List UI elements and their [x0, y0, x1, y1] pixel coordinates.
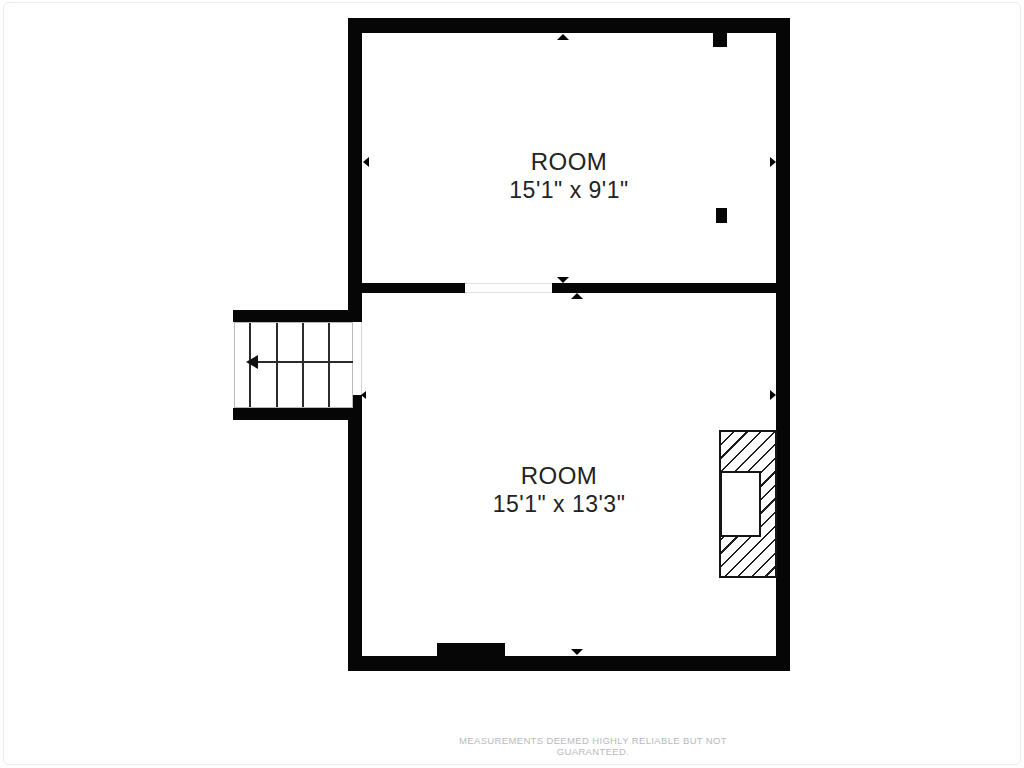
stair-tread-line [328, 323, 330, 407]
left-arrow-icon [361, 391, 366, 399]
stair-direction-arrow-left-icon [246, 355, 258, 369]
divider-wall-right [552, 283, 776, 293]
wall-top [348, 18, 790, 33]
room-1-dimensions: 15'1" x 9'1" [459, 176, 679, 205]
wall-right [776, 18, 790, 671]
room-1-name: ROOM [459, 147, 679, 176]
wall-bottom [348, 656, 790, 671]
down-arrow-icon [571, 649, 583, 655]
right-arrow-icon [770, 157, 776, 167]
disclaimer-text: MEASUREMENTS DEEMED HIGHLY RELIABLE BUT … [443, 735, 743, 757]
up-arrow-icon [571, 293, 583, 299]
left-arrow-icon [363, 157, 369, 167]
wall-post-mid [716, 208, 727, 223]
up-arrow-icon [557, 34, 569, 40]
room-2-name: ROOM [449, 461, 669, 490]
floorplan-canvas: ROOM 15'1" x 9'1" ROOM 15'1" x 13'3" MEA… [0, 0, 1024, 768]
page-border [3, 2, 1021, 765]
doorway-gap [465, 283, 552, 293]
divider-wall-left [362, 283, 465, 293]
down-arrow-icon [557, 277, 569, 283]
stair-wall-bottom [233, 408, 362, 420]
stair-tread-line [276, 323, 278, 407]
stair-direction-line [250, 361, 353, 363]
wall-post-top [713, 33, 727, 47]
room-2-dimensions: 15'1" x 13'3" [449, 490, 669, 519]
right-arrow-icon [770, 390, 776, 400]
hearth-block [437, 643, 505, 656]
room-2-label: ROOM 15'1" x 13'3" [449, 461, 669, 519]
stair-tread-line [302, 323, 304, 407]
fireplace-insert [720, 471, 761, 537]
wall-left-lower [348, 395, 362, 656]
wall-left-upper [348, 18, 362, 322]
room-1-label: ROOM 15'1" x 9'1" [459, 147, 679, 205]
stair-wall-top [233, 310, 362, 322]
